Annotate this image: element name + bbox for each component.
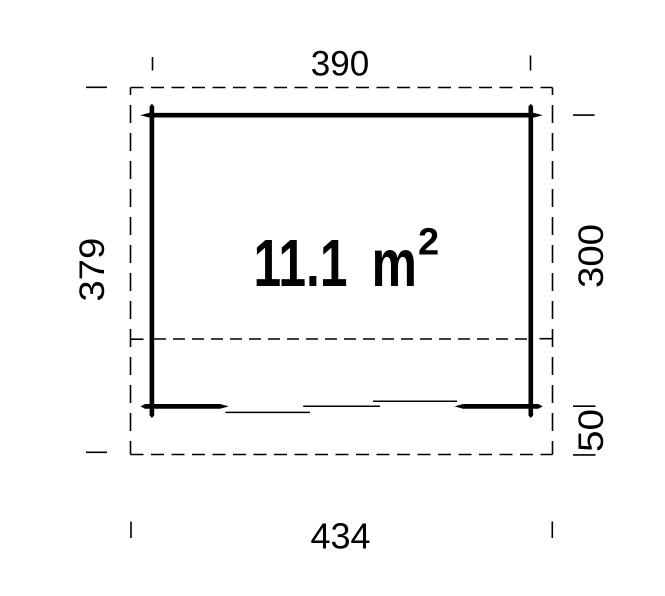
- svg-text:2: 2: [418, 222, 439, 264]
- svg-text:379: 379: [73, 238, 112, 302]
- svg-text:390: 390: [311, 45, 370, 84]
- svg-text:50: 50: [572, 409, 611, 452]
- svg-text:300: 300: [572, 224, 611, 288]
- svg-text:m: m: [372, 226, 418, 301]
- svg-text:11.1: 11.1: [254, 226, 348, 301]
- svg-text:434: 434: [310, 516, 370, 557]
